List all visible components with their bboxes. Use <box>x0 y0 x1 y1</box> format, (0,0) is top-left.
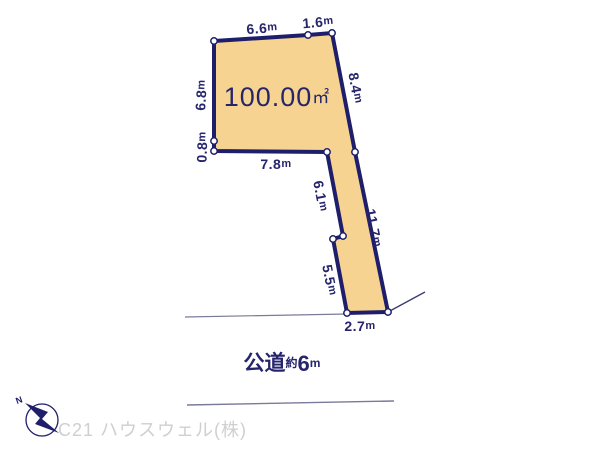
plot-canvas: 6.6m 1.6m 8.4m 6.8m 0.8m 7.8m 6.1m 11.7m… <box>0 0 600 450</box>
dim-label-8-4m: 8.4m <box>345 71 366 105</box>
road-edge-line-upper <box>185 314 347 317</box>
vertex-dot <box>385 309 391 315</box>
dim-label-6-6m: 6.6m <box>246 19 278 37</box>
road-label: 公道約6m <box>244 351 321 376</box>
vertex-dot <box>211 148 217 154</box>
vertex-dot <box>340 233 346 239</box>
vertex-dot <box>324 149 330 155</box>
road-edge-line-lower <box>187 401 394 405</box>
vertex-dot <box>344 310 350 316</box>
dim-label-1-6m: 1.6m <box>302 13 335 32</box>
compass-icon: N <box>14 394 59 436</box>
boundary-diagonal-line <box>388 292 425 312</box>
dim-label-6-1m: 6.1m <box>310 179 332 213</box>
vertex-dot <box>330 236 336 242</box>
dim-label-2-7m: 2.7m <box>344 318 375 334</box>
vertex-dot <box>305 32 311 38</box>
dim-label-7-8m: 7.8m <box>260 156 291 172</box>
vertex-dot <box>352 149 358 155</box>
compass-needle <box>25 403 59 433</box>
land-plot-diagram: 6.6m 1.6m 8.4m 6.8m 0.8m 7.8m 6.1m 11.7m… <box>0 0 600 450</box>
compass-north-label: N <box>14 394 24 406</box>
dim-label-0-8m: 0.8m <box>193 131 210 163</box>
vertex-dot <box>329 30 335 36</box>
dim-label-6-8m: 6.8m <box>192 79 210 111</box>
vertex-dot <box>211 138 217 144</box>
vertex-dot <box>211 38 217 44</box>
company-watermark: C21 ハウスウェル(株) <box>58 420 247 440</box>
